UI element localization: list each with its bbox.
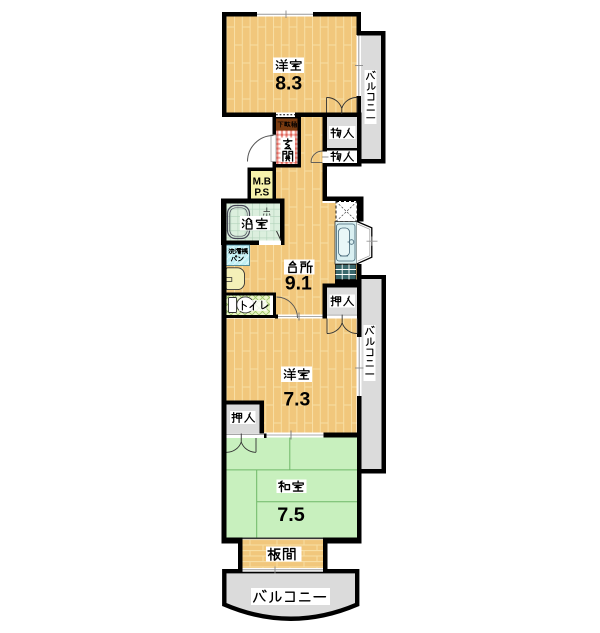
svg-text:P.S: P.S: [254, 188, 269, 199]
svg-text:M.B: M.B: [253, 177, 271, 188]
svg-text:8.3: 8.3: [275, 73, 302, 95]
svg-text:7.5: 7.5: [277, 504, 305, 526]
svg-text:9.1: 9.1: [285, 273, 312, 295]
svg-text:7.3: 7.3: [283, 389, 310, 411]
